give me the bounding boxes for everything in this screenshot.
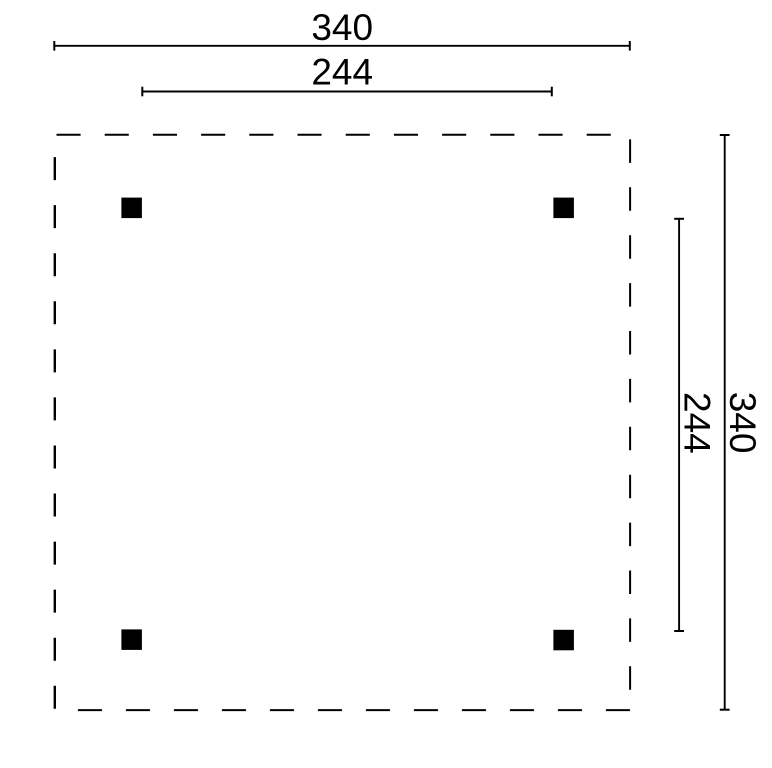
svg-text:244: 244: [311, 52, 373, 93]
svg-text:244: 244: [676, 392, 717, 454]
svg-text:340: 340: [722, 392, 763, 454]
svg-text:340: 340: [311, 7, 373, 48]
